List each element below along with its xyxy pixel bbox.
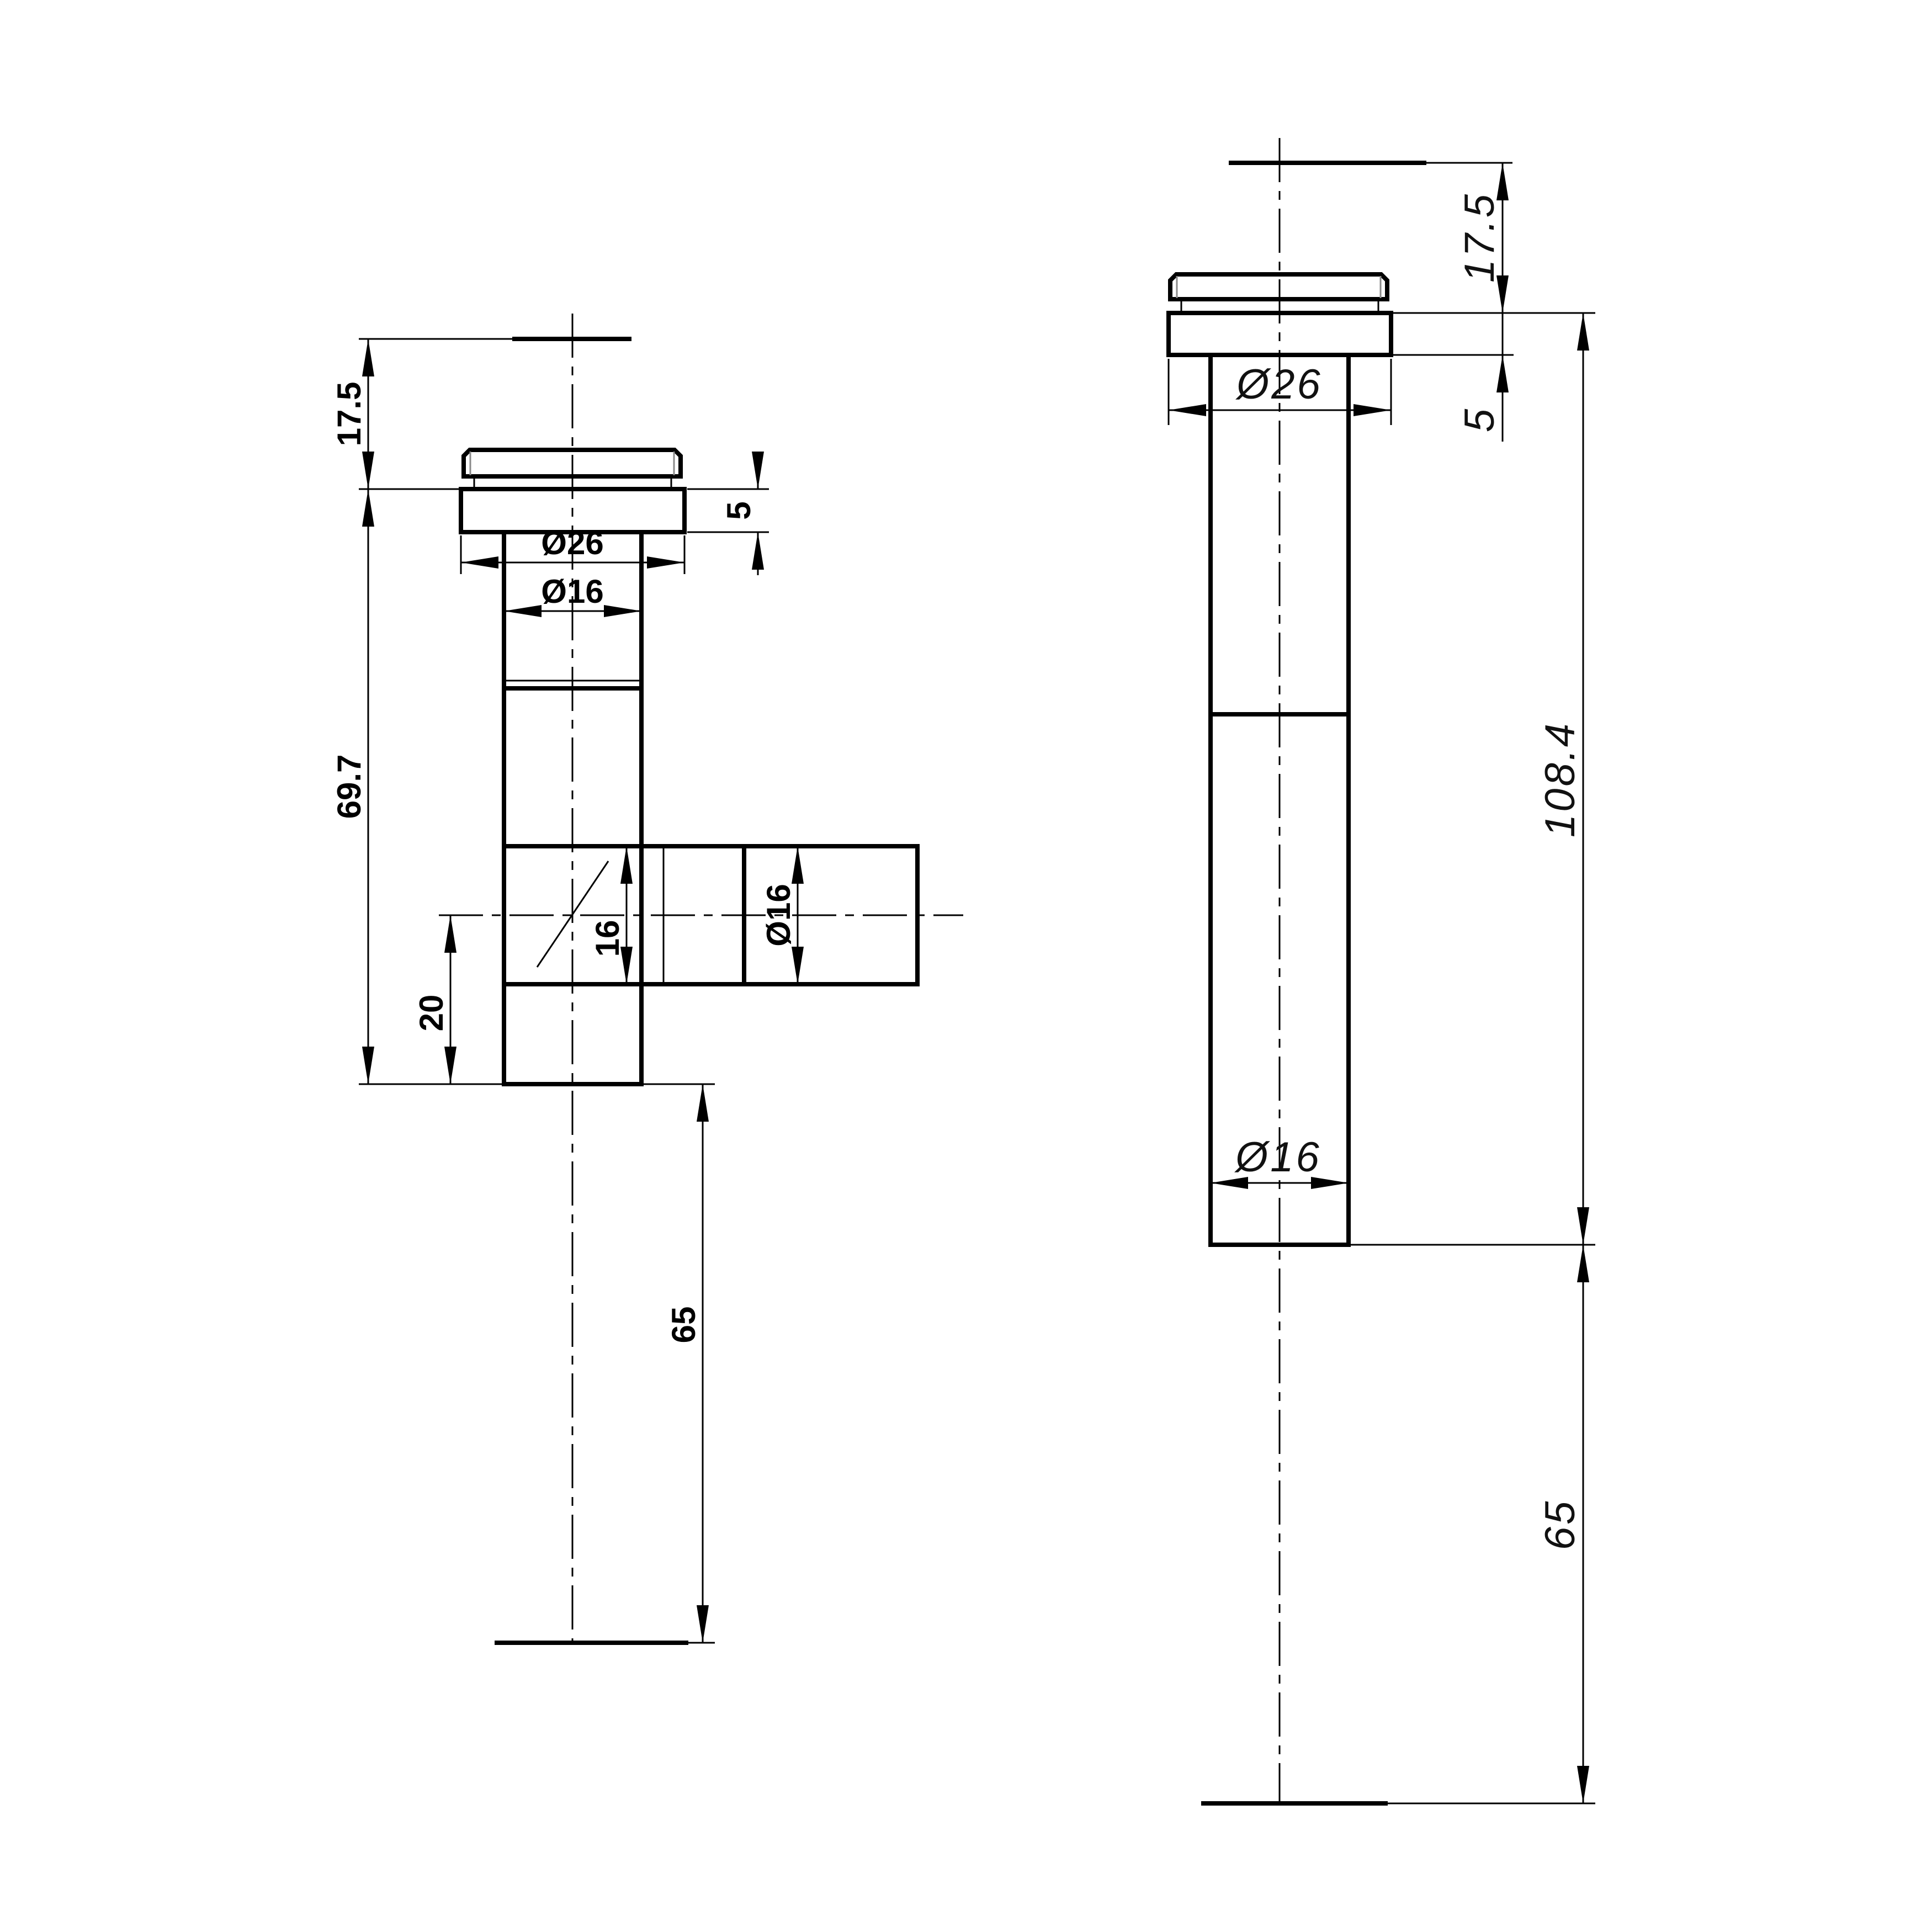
arrow-down xyxy=(444,1047,457,1084)
arrow-down xyxy=(1577,1766,1589,1803)
dim-label-20: 20 xyxy=(413,995,450,1032)
dim-label-dia16: Ø16 xyxy=(1234,1134,1321,1181)
dim-label-dia16-branch: Ø16 xyxy=(760,884,797,946)
dim-label-108-4: 108.4 xyxy=(1537,721,1584,837)
left-dim-20: 20 xyxy=(413,915,457,1084)
arrow-up xyxy=(1577,1245,1589,1282)
right-dim-108-4: 108.4 xyxy=(1537,313,1589,1245)
arrow-up xyxy=(620,846,633,884)
left-centerlines xyxy=(439,314,963,1643)
left-dim-dia16-tube: Ø16 xyxy=(504,573,641,617)
dim-label-17-5: 17.5 xyxy=(331,382,368,447)
left-view: 17.5 69.7 5 Ø26 xyxy=(331,314,963,1643)
arrow-down xyxy=(697,1605,709,1643)
dim-label-69-7: 69.7 xyxy=(331,755,368,819)
dim-label-dia26: Ø26 xyxy=(1235,361,1323,408)
dim-label-16: 16 xyxy=(589,920,626,957)
technical-drawing-canvas: 17.5 69.7 5 Ø26 xyxy=(0,0,1932,1932)
arrow-up xyxy=(792,846,804,884)
left-dim-5: 5 xyxy=(687,452,769,575)
arrow-up xyxy=(697,1084,709,1122)
dim-label-65: 65 xyxy=(665,1307,702,1344)
dim-label-5: 5 xyxy=(720,501,757,519)
arrow-right xyxy=(604,605,641,617)
right-dim-dia26: Ø26 xyxy=(1169,359,1391,425)
left-dim-65: 65 xyxy=(641,1084,715,1643)
dim-label-dia16-tube: Ø16 xyxy=(541,573,603,610)
arrow-up xyxy=(1577,313,1589,351)
arrow-down xyxy=(362,452,374,489)
left-dim-dia16-branch: Ø16 xyxy=(760,846,804,984)
arrow-down xyxy=(1577,1207,1589,1245)
arrow-down xyxy=(792,947,804,984)
right-dim-65: 65 xyxy=(1537,1245,1589,1803)
arrow-right xyxy=(647,556,684,569)
dim-label-dia26: Ø26 xyxy=(541,524,603,561)
arrow-left xyxy=(461,556,498,569)
arrow-up xyxy=(752,532,764,570)
arrow-up xyxy=(362,339,374,376)
arrow-left xyxy=(504,605,542,617)
left-dim-17-5: 17.5 xyxy=(331,339,461,489)
drawing-sheet: 17.5 69.7 5 Ø26 xyxy=(0,0,1932,1932)
arrow-up xyxy=(1496,355,1509,392)
arrow-up xyxy=(362,489,374,527)
left-part-outline xyxy=(359,339,917,1643)
right-view: 17.5 5 Ø26 108.4 xyxy=(1169,138,1595,1803)
dim-label-65: 65 xyxy=(1537,1499,1584,1551)
arrow-down xyxy=(362,1047,374,1084)
arrow-up xyxy=(444,915,457,953)
arrow-left xyxy=(1169,404,1206,416)
dim-label-5: 5 xyxy=(1456,407,1503,432)
right-dim-17-5: 17.5 xyxy=(1456,163,1509,313)
arrow-right xyxy=(1354,404,1391,416)
arrow-down xyxy=(752,452,764,489)
dim-label-17-5: 17.5 xyxy=(1456,192,1503,283)
right-dim-5: 5 xyxy=(1456,313,1509,442)
